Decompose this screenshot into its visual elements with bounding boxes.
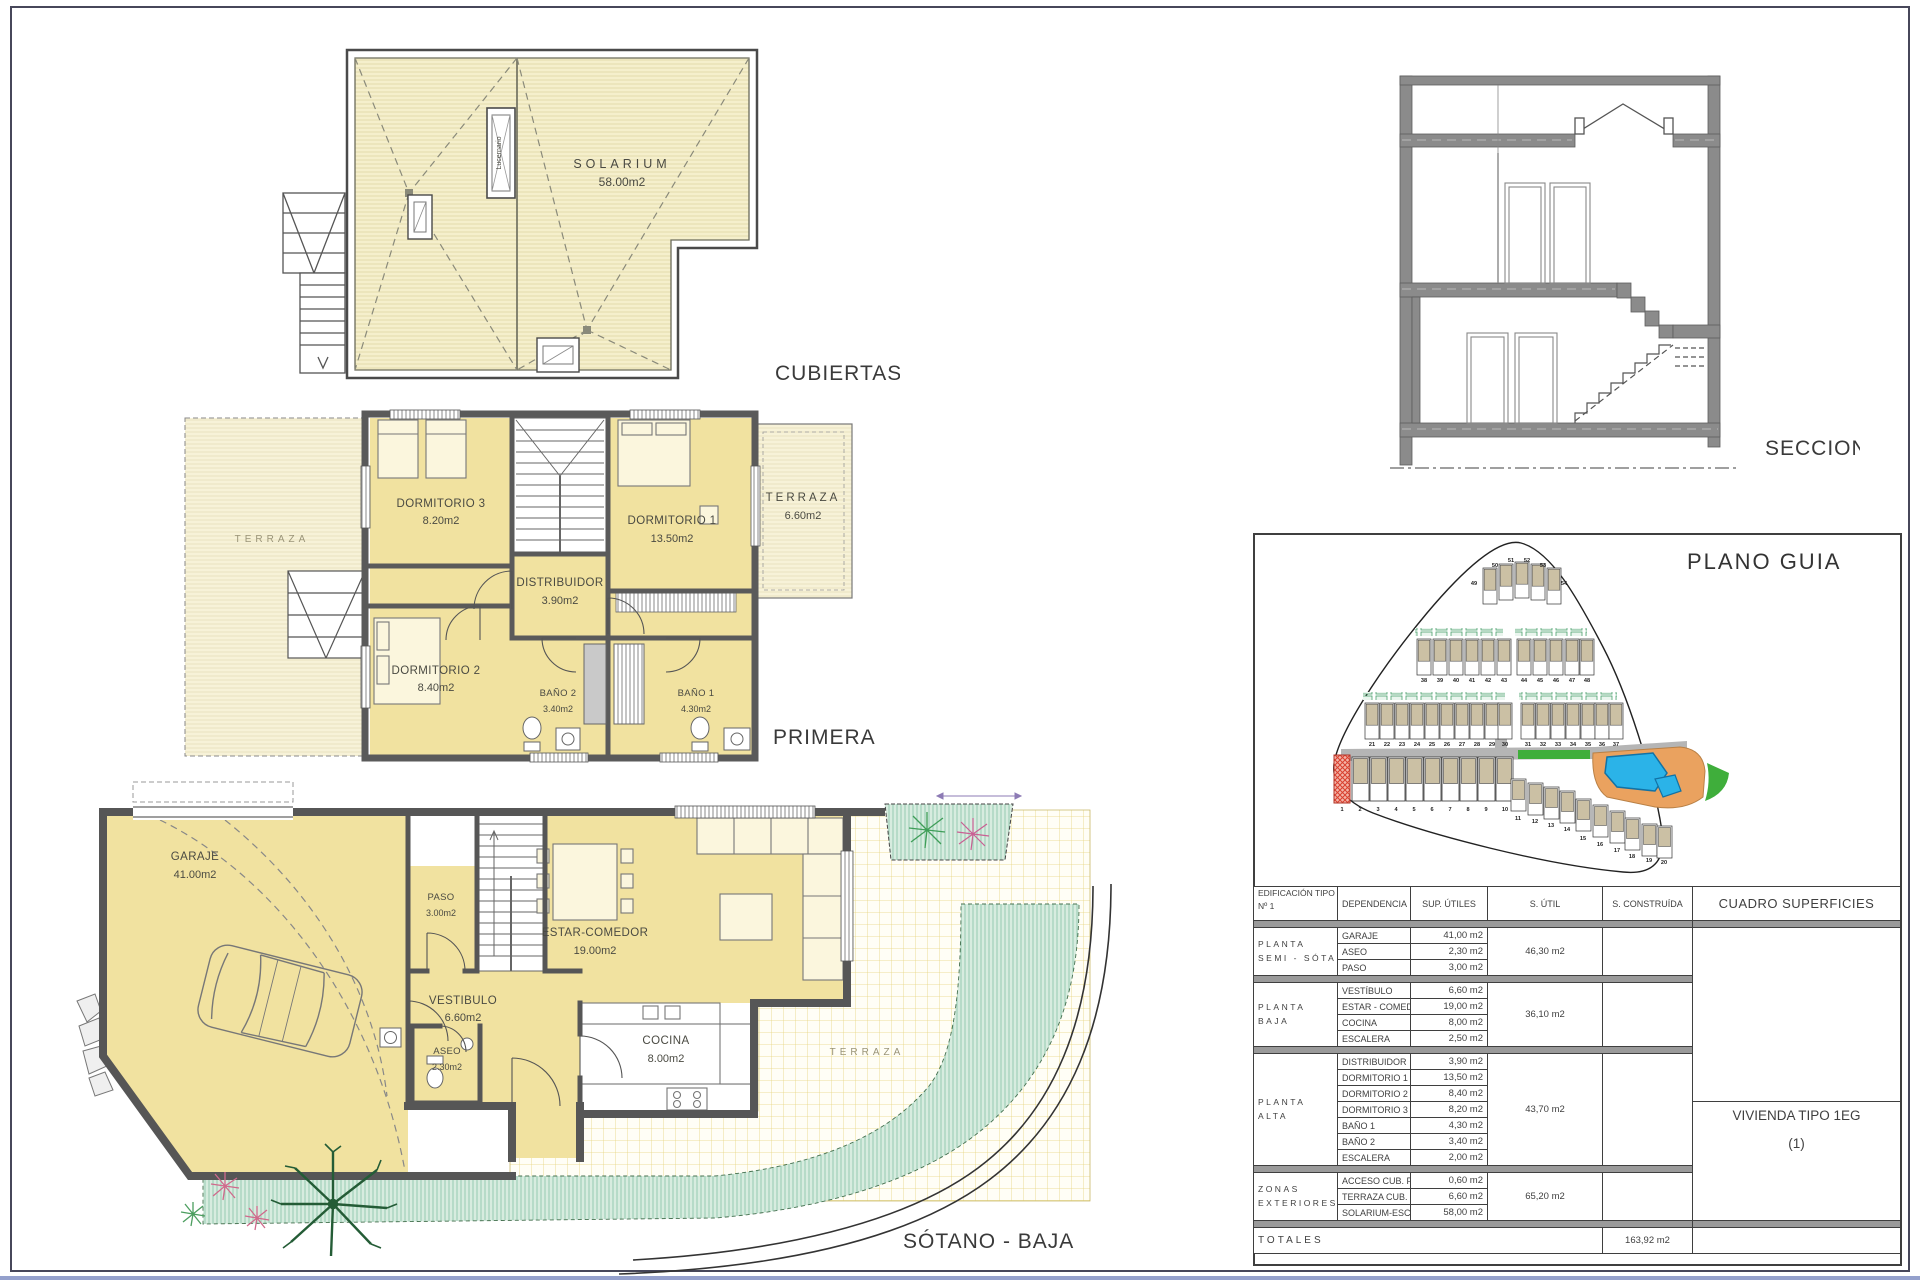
plan-title-seccion: SECCION bbox=[1765, 437, 1860, 460]
exterior-stair bbox=[283, 193, 345, 373]
surfaces-table: EDIFICACIÓN TIPO 1EGNº 1 DEPENDENCIA SUP… bbox=[1253, 886, 1901, 1254]
value-cell: 2,00 m2 bbox=[1411, 1150, 1488, 1166]
room-label: GARAJE bbox=[171, 851, 219, 863]
svg-text:16: 16 bbox=[1597, 842, 1603, 848]
svg-text:30: 30 bbox=[1502, 742, 1508, 748]
roof-hatch-box-small bbox=[408, 195, 432, 239]
svg-text:33: 33 bbox=[1555, 742, 1561, 748]
totales-label: TOTALES bbox=[1254, 1228, 1603, 1254]
plan-title-cubiertas: CUBIERTAS bbox=[775, 362, 900, 385]
svg-text:9: 9 bbox=[1484, 807, 1487, 813]
dependencia-cell: DISTRIBUIDOR bbox=[1338, 1054, 1411, 1070]
header-s-util: S. ÚTIL bbox=[1488, 887, 1603, 921]
dependencia-cell: ESTAR - COMEDOR bbox=[1338, 999, 1411, 1015]
plan-title-primera: PRIMERA bbox=[773, 726, 876, 749]
room-area: 6.60m2 bbox=[785, 510, 822, 522]
room-area-solarium: 58.00m2 bbox=[599, 175, 646, 189]
room-area: 6.60m2 bbox=[445, 1012, 482, 1024]
svg-text:1: 1 bbox=[1340, 807, 1343, 813]
sheet-bottom-line bbox=[0, 1276, 1920, 1280]
value-cell: 4,30 m2 bbox=[1411, 1118, 1488, 1134]
svg-text:8: 8 bbox=[1466, 807, 1469, 813]
svg-text:23: 23 bbox=[1399, 742, 1405, 748]
dependencia-cell: DORMITORIO 1 bbox=[1338, 1070, 1411, 1086]
roof-plan-drawing: Lucernario SOLARIUM 58.00m2 CUBIERTAS bbox=[278, 38, 900, 390]
svg-text:17: 17 bbox=[1614, 848, 1620, 854]
room-area: 8.20m2 bbox=[423, 515, 460, 527]
svg-text:11: 11 bbox=[1515, 816, 1521, 822]
header-dependencia: DEPENDENCIA bbox=[1338, 887, 1411, 921]
stair bbox=[477, 812, 545, 971]
room-label: BAÑO 1 bbox=[678, 688, 715, 699]
skylight-lucernario: Lucernario bbox=[487, 108, 515, 198]
svg-text:41: 41 bbox=[1469, 678, 1475, 684]
value-cell: 3,40 m2 bbox=[1411, 1134, 1488, 1150]
dependencia-cell: BAÑO 1 bbox=[1338, 1118, 1411, 1134]
section-drawing: SECCION bbox=[1390, 58, 1860, 483]
room-area: 3.40m2 bbox=[543, 704, 573, 714]
header-edificacion: EDIFICACIÓN TIPO 1EGNº 1 bbox=[1254, 887, 1338, 921]
svg-text:29: 29 bbox=[1489, 742, 1495, 748]
room-area: 41.00m2 bbox=[174, 869, 217, 881]
plan-title-sotano: SÓTANO - BAJA bbox=[903, 1230, 1074, 1253]
svg-text:48: 48 bbox=[1584, 678, 1590, 684]
svg-text:38: 38 bbox=[1421, 678, 1427, 684]
room-area: 2.30m2 bbox=[432, 1062, 462, 1072]
value-cell: 0,60 m2 bbox=[1411, 1173, 1488, 1189]
svg-text:12: 12 bbox=[1532, 819, 1538, 825]
svg-text:15: 15 bbox=[1580, 836, 1586, 842]
room-label: PASO bbox=[428, 892, 455, 903]
skylight-label: Lucernario bbox=[496, 136, 503, 169]
svg-text:20: 20 bbox=[1661, 860, 1667, 866]
room-area: 19.00m2 bbox=[574, 945, 617, 957]
svg-text:18: 18 bbox=[1629, 854, 1635, 860]
svg-text:32: 32 bbox=[1540, 742, 1546, 748]
svg-text:34: 34 bbox=[1570, 742, 1577, 748]
svg-text:13: 13 bbox=[1548, 823, 1554, 829]
planter bbox=[885, 793, 1021, 860]
value-cell: 41,00 m2 bbox=[1411, 928, 1488, 944]
roof-hatch-box-bottom bbox=[537, 338, 579, 372]
room-label: DORMITORIO 3 bbox=[397, 498, 486, 510]
value-cell: 19,00 m2 bbox=[1411, 999, 1488, 1015]
separator bbox=[1254, 1166, 1693, 1173]
dependencia-cell: COCINA bbox=[1338, 1015, 1411, 1031]
svg-text:39: 39 bbox=[1437, 678, 1443, 684]
room-label: DORMITORIO 2 bbox=[392, 665, 481, 677]
group-label: PLANTASEMI - SÓTANO bbox=[1254, 928, 1338, 976]
basement-ground-drawing: GARAJE 41.00m2 PASO 3.00m2 ESTAR-COMEDOR… bbox=[75, 756, 1180, 1278]
svg-text:52: 52 bbox=[1524, 558, 1530, 564]
svg-text:22: 22 bbox=[1384, 742, 1390, 748]
value-cell: 2,30 m2 bbox=[1411, 944, 1488, 960]
svg-text:19: 19 bbox=[1646, 858, 1652, 864]
room-area: 8.00m2 bbox=[648, 1053, 685, 1065]
svg-text:31: 31 bbox=[1525, 742, 1531, 748]
totales-cuadro-cell bbox=[1693, 1228, 1901, 1254]
room-area: 3.90m2 bbox=[542, 595, 579, 607]
svg-text:26: 26 bbox=[1444, 742, 1450, 748]
svg-text:44: 44 bbox=[1521, 678, 1528, 684]
svg-text:50: 50 bbox=[1492, 563, 1498, 569]
group-label: ZONASEXTERIORES bbox=[1254, 1173, 1338, 1221]
header-s-construida: S. CONSTRUÍDA bbox=[1603, 887, 1693, 921]
construida-cell bbox=[1603, 928, 1693, 976]
stair-core bbox=[512, 418, 608, 554]
dependencia-cell: VESTÍBULO bbox=[1338, 983, 1411, 999]
room-label: TERRAZA bbox=[766, 492, 841, 504]
room-label: BAÑO 2 bbox=[540, 688, 577, 699]
value-cell: 2,50 m2 bbox=[1411, 1031, 1488, 1047]
subtotal-cell: 43,70 m2 bbox=[1488, 1054, 1603, 1166]
svg-text:51: 51 bbox=[1508, 558, 1514, 564]
group-label: PLANTAALTA bbox=[1254, 1054, 1338, 1166]
plano-guia-panel: PLANO GUIA bbox=[1253, 533, 1902, 1266]
dependencia-cell: DORMITORIO 3 bbox=[1338, 1102, 1411, 1118]
svg-text:6: 6 bbox=[1430, 807, 1433, 813]
separator bbox=[1693, 921, 1901, 928]
header-sup-utiles: SUP. ÚTILES bbox=[1411, 887, 1488, 921]
terrace-label: TERRAZA bbox=[830, 1047, 905, 1058]
svg-text:53: 53 bbox=[1540, 563, 1546, 569]
value-cell: 13,50 m2 bbox=[1411, 1070, 1488, 1086]
svg-text:54: 54 bbox=[1561, 581, 1568, 587]
room-area: 13.50m2 bbox=[651, 533, 694, 545]
dependencia-cell: TERRAZA CUB. PA bbox=[1338, 1189, 1411, 1205]
svg-text:42: 42 bbox=[1485, 678, 1491, 684]
construida-cell bbox=[1603, 1173, 1693, 1221]
room-label-solarium: SOLARIUM bbox=[573, 157, 670, 171]
svg-text:28: 28 bbox=[1474, 742, 1480, 748]
dependencia-cell: ACCESO CUB. PB bbox=[1338, 1173, 1411, 1189]
value-cell: 6,60 m2 bbox=[1411, 983, 1488, 999]
value-cell: 3,90 m2 bbox=[1411, 1054, 1488, 1070]
garage-door bbox=[133, 782, 293, 820]
value-cell: 8,00 m2 bbox=[1411, 1015, 1488, 1031]
subtotal-cell: 65,20 m2 bbox=[1488, 1173, 1603, 1221]
separator bbox=[1254, 1221, 1693, 1228]
site-plan-drawing: PLANO GUIA bbox=[1255, 535, 1900, 886]
hip-node bbox=[583, 326, 591, 334]
header-cuadro: CUADRO SUPERFICIES bbox=[1693, 887, 1901, 921]
value-cell: 58,00 m2 bbox=[1411, 1205, 1488, 1221]
dependencia-cell: PASO bbox=[1338, 960, 1411, 976]
group-label: PLANTABAJA bbox=[1254, 983, 1338, 1047]
dependencia-cell: BAÑO 2 bbox=[1338, 1134, 1411, 1150]
svg-text:49: 49 bbox=[1471, 581, 1477, 587]
svg-text:2: 2 bbox=[1358, 807, 1361, 813]
svg-text:46: 46 bbox=[1553, 678, 1559, 684]
separator bbox=[1693, 1221, 1901, 1228]
value-cell: 8,20 m2 bbox=[1411, 1102, 1488, 1118]
svg-text:37: 37 bbox=[1613, 742, 1619, 748]
separator bbox=[1254, 976, 1693, 983]
svg-text:5: 5 bbox=[1412, 807, 1415, 813]
svg-text:3: 3 bbox=[1376, 807, 1379, 813]
dependencia-cell: DORMITORIO 2 bbox=[1338, 1086, 1411, 1102]
dependencia-cell: GARAJE bbox=[1338, 928, 1411, 944]
room-label: ASEO bbox=[433, 1046, 461, 1057]
room-label: VESTIBULO bbox=[429, 995, 497, 1007]
cuadro-empty-cell bbox=[1693, 928, 1901, 1102]
subtotal-cell: 36,10 m2 bbox=[1488, 983, 1603, 1047]
svg-text:40: 40 bbox=[1453, 678, 1459, 684]
svg-text:43: 43 bbox=[1501, 678, 1507, 684]
room-label: DORMITORIO 1 bbox=[628, 515, 717, 527]
svg-text:10: 10 bbox=[1502, 807, 1508, 813]
svg-text:21: 21 bbox=[1369, 742, 1375, 748]
svg-text:24: 24 bbox=[1414, 742, 1421, 748]
blueprint-sheet: Lucernario SOLARIUM 58.00m2 CUBIERTAS TE… bbox=[0, 0, 1920, 1280]
terrace-left-label: TERRAZA bbox=[235, 534, 310, 545]
dependencia-cell: ASEO bbox=[1338, 944, 1411, 960]
plano-guia-title: PLANO GUIA bbox=[1687, 549, 1841, 574]
room-area: 4.30m2 bbox=[681, 704, 711, 714]
subtotal-cell: 46,30 m2 bbox=[1488, 928, 1603, 976]
room-label: DISTRIBUIDOR bbox=[516, 577, 603, 589]
construida-cell bbox=[1603, 983, 1693, 1047]
svg-text:25: 25 bbox=[1429, 742, 1435, 748]
separator bbox=[1254, 1047, 1693, 1054]
highlighted-lot-1 bbox=[1334, 755, 1350, 803]
dependencia-cell: ESCALERA bbox=[1338, 1031, 1411, 1047]
terrace-stair bbox=[288, 571, 365, 658]
svg-text:35: 35 bbox=[1585, 742, 1591, 748]
room-area: 3.00m2 bbox=[426, 908, 456, 918]
dependencia-cell: SOLARIUM-ESCAL. bbox=[1338, 1205, 1411, 1221]
construida-cell bbox=[1603, 1054, 1693, 1166]
totales-value: 163,92 m2 bbox=[1603, 1228, 1693, 1254]
svg-text:27: 27 bbox=[1459, 742, 1465, 748]
room-label: COCINA bbox=[642, 1035, 689, 1047]
vivienda-tipo-cell: VIVIENDA TIPO 1EG(1) bbox=[1693, 1102, 1901, 1221]
first-floor-drawing: TERRAZA bbox=[180, 406, 880, 784]
svg-text:47: 47 bbox=[1569, 678, 1575, 684]
svg-text:14: 14 bbox=[1564, 827, 1571, 833]
value-cell: 6,60 m2 bbox=[1411, 1189, 1488, 1205]
room-area: 8.40m2 bbox=[418, 682, 455, 694]
section-stair bbox=[1575, 345, 1706, 423]
section-skylight bbox=[1575, 104, 1673, 134]
separator bbox=[1254, 921, 1693, 928]
svg-text:36: 36 bbox=[1599, 742, 1605, 748]
value-cell: 3,00 m2 bbox=[1411, 960, 1488, 976]
value-cell: 8,40 m2 bbox=[1411, 1086, 1488, 1102]
svg-text:45: 45 bbox=[1537, 678, 1543, 684]
dependencia-cell: ESCALERA bbox=[1338, 1150, 1411, 1166]
room-label: ESTAR-COMEDOR bbox=[542, 927, 649, 939]
svg-text:7: 7 bbox=[1448, 807, 1451, 813]
